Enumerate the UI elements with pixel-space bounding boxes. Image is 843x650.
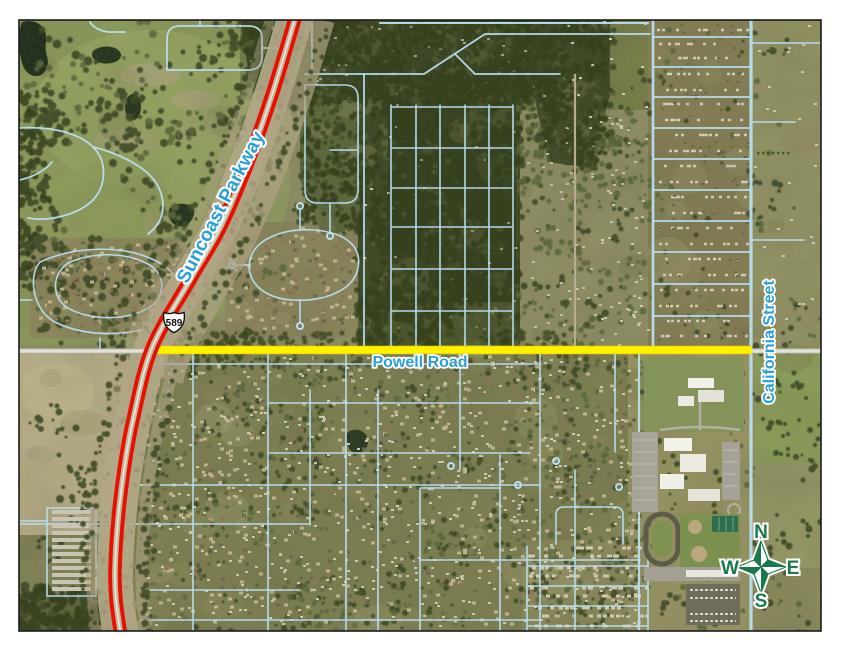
svg-text:589: 589 <box>166 318 183 329</box>
svg-text:W: W <box>721 558 739 579</box>
svg-text:E: E <box>787 558 800 579</box>
svg-text:N: N <box>754 522 768 543</box>
svg-text:S: S <box>755 591 768 612</box>
svg-text:California Street: California Street <box>761 280 778 404</box>
svg-text:Powell Road: Powell Road <box>372 354 467 371</box>
